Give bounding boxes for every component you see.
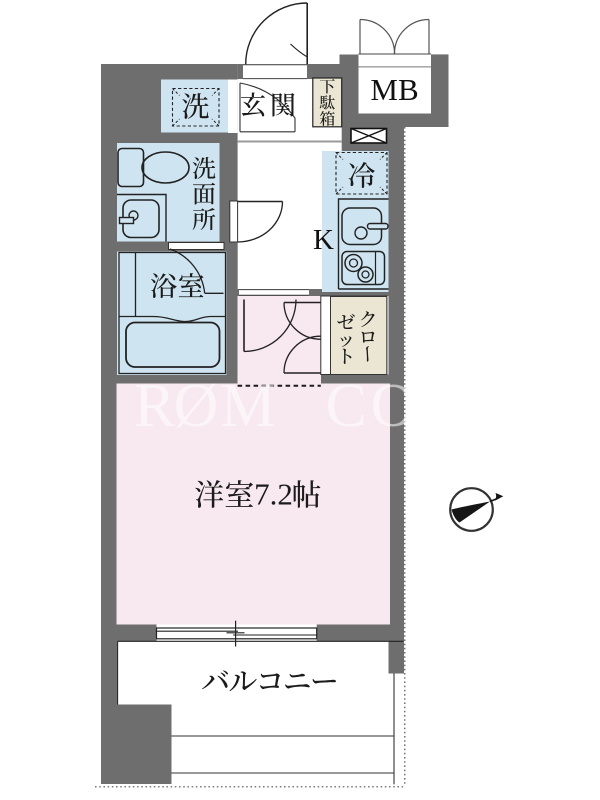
svg-text:R: R (134, 372, 176, 440)
svg-text:7.2: 7.2 (254, 477, 293, 512)
svg-text:MB: MB (370, 72, 418, 107)
svg-text:P: P (418, 372, 452, 440)
svg-text:Ø: Ø (174, 372, 219, 440)
svg-text:K: K (313, 224, 334, 256)
svg-text:C: C (326, 372, 367, 440)
svg-text:M: M (221, 372, 276, 440)
svg-text:O: O (371, 372, 416, 440)
